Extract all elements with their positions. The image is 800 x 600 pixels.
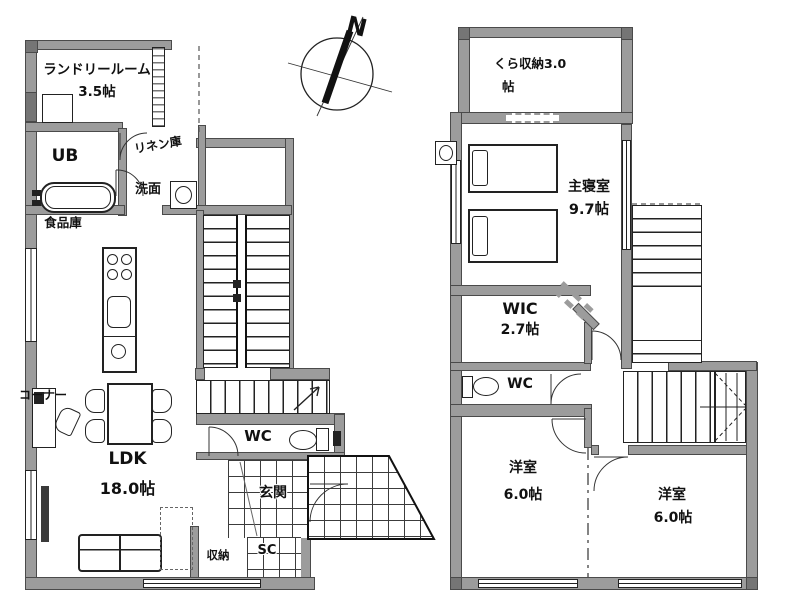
tv-board: [41, 486, 49, 542]
room-label-wc-2f: WC: [500, 377, 540, 392]
kitchen-divider: [103, 336, 136, 337]
bathtub-inner: [45, 186, 111, 209]
room-size-laundry: 3.5帖: [22, 85, 172, 100]
room-label-linen: リネン庫: [123, 133, 192, 158]
wall-segment: [450, 285, 591, 296]
stair-landing: [633, 298, 701, 340]
bed-pillow: [472, 150, 488, 186]
wall-corner: [25, 40, 38, 53]
wall-corner: [450, 577, 462, 590]
wall-segment: [628, 445, 757, 455]
stair-clip: [233, 280, 241, 288]
floor-plan-canvas: ランドリールーム 3.5帖 UB リネン庫 洗面 食品庫 コーナー LDK 18…: [0, 0, 800, 600]
room-size-bedroom-a: 6.0帖: [490, 488, 556, 503]
room-label-wc-1f: WC: [235, 428, 281, 445]
room-label-ub: UB: [40, 147, 90, 166]
wall-segment: [198, 125, 206, 210]
wall-segment: [746, 362, 758, 590]
window: [25, 248, 37, 342]
room-label-entrance: 玄関: [244, 486, 302, 501]
stove-burner: [121, 254, 132, 265]
kitchen-basin: [111, 344, 126, 359]
toilet-fixture: [333, 431, 341, 446]
room-label-laundry: ランドリールーム: [22, 63, 172, 78]
wall-segment: [25, 40, 172, 50]
chair: [85, 419, 105, 443]
staircase-winder-2f: [623, 371, 715, 443]
toilet-bowl: [473, 377, 499, 396]
wall-segment: [458, 27, 633, 38]
wall-segment: [196, 138, 294, 148]
wall-segment: [118, 128, 127, 216]
room-label-bedroom-b: 洋室: [644, 488, 700, 503]
stove-burner: [121, 269, 132, 280]
window: [622, 140, 631, 250]
window: [618, 579, 742, 588]
wall-segment: [591, 445, 599, 455]
room-label-kura: くら収納3.0: [494, 57, 594, 71]
staircase-winder: [196, 380, 330, 414]
faucet: [32, 200, 41, 206]
desk-chair: [52, 405, 81, 437]
wall-segment: [584, 408, 592, 448]
room-size-master: 9.7帖: [558, 203, 620, 219]
wall-segment: [195, 368, 205, 380]
wall-segment: [25, 122, 123, 132]
dining-table: [107, 383, 153, 445]
window: [143, 579, 261, 588]
room-label-master: 主寝室: [558, 180, 620, 195]
chair: [85, 389, 105, 413]
room-label-bedroom-a: 洋室: [494, 461, 552, 476]
compass: N: [288, 11, 392, 116]
toilet-bowl: [289, 430, 317, 450]
room-label-pantry: 食品庫: [28, 216, 98, 230]
wall-segment: [196, 413, 345, 425]
room-size-wic: 2.7帖: [488, 323, 552, 338]
faucet: [32, 190, 41, 196]
room-label-washroom: 洗面: [126, 183, 170, 197]
toilet-tank: [462, 376, 473, 398]
kitchen-sink: [107, 296, 131, 328]
wall-basin-bowl: [439, 145, 453, 161]
room-label-storage: 収納: [197, 549, 239, 562]
stove-burner: [107, 254, 118, 265]
wall-segment: [458, 27, 470, 123]
room-label-wic: WIC: [488, 300, 552, 318]
bed-pillow: [472, 216, 488, 256]
wall-segment: [450, 404, 592, 417]
stove-burner: [107, 269, 118, 280]
compass-n-label: N: [344, 11, 370, 43]
room-label-corner: コーナー: [6, 389, 80, 402]
room-label-shoe-closet: SC: [249, 544, 285, 558]
room-size-kura: 帖: [502, 80, 532, 94]
dashed-opening: [506, 113, 559, 123]
room-label-ldk: LDK: [70, 450, 185, 469]
stair-clip: [233, 294, 241, 302]
chair: [152, 419, 172, 443]
wall-segment: [621, 27, 633, 123]
stair-rail: [236, 215, 247, 368]
staircase-winder-corner: [715, 371, 746, 443]
wall-segment: [450, 362, 591, 371]
porch-tile: [308, 456, 435, 539]
compass-needle: [325, 31, 350, 103]
wall-segment: [270, 368, 330, 380]
toilet-tank: [316, 428, 329, 451]
window: [451, 160, 461, 244]
future-furniture-area: [160, 507, 193, 570]
room-size-ldk: 18.0帖: [70, 480, 185, 498]
washbasin-bowl: [175, 186, 192, 204]
sofa: [78, 534, 162, 572]
window: [478, 579, 578, 588]
window: [25, 470, 37, 540]
wall-corner: [458, 27, 470, 40]
wall-corner: [746, 577, 758, 590]
wall-corner: [621, 27, 633, 40]
room-size-bedroom-b: 6.0帖: [642, 511, 704, 526]
chair: [152, 389, 172, 413]
